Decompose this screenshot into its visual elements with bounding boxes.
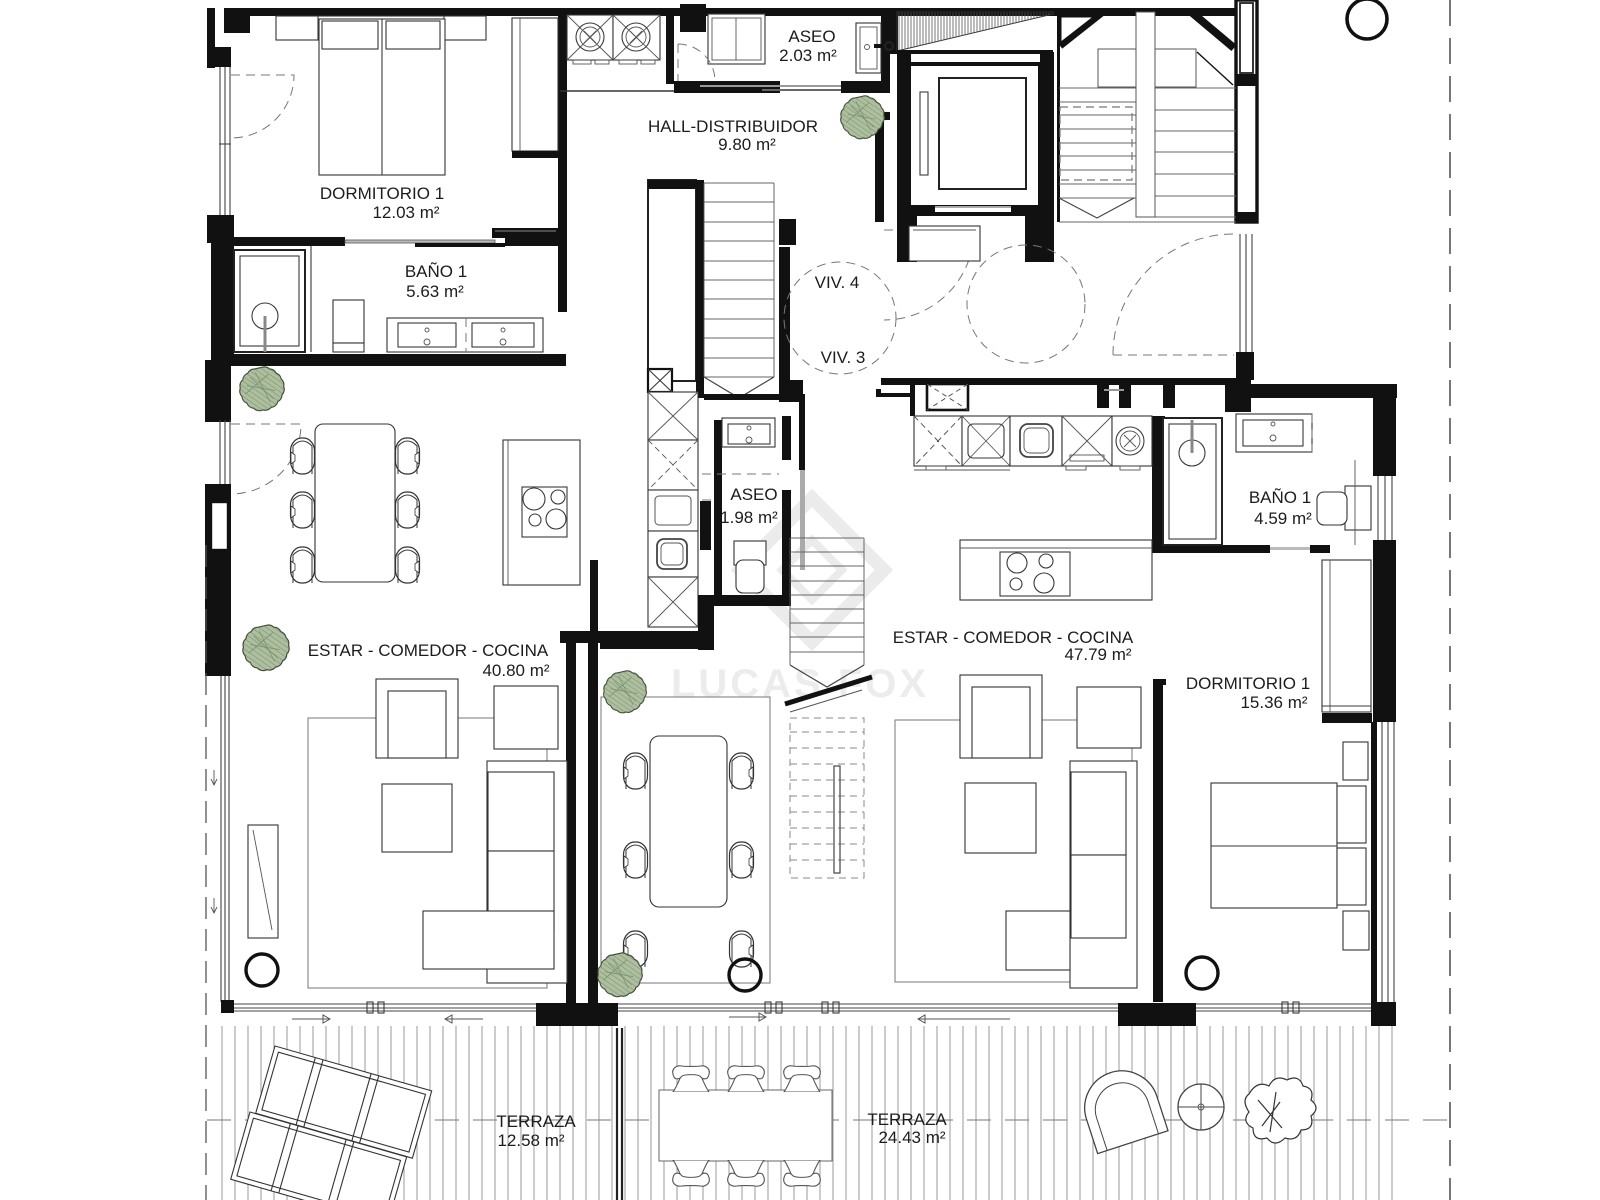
svg-text:VIV. 3: VIV. 3	[821, 348, 866, 367]
svg-text:ASEO: ASEO	[788, 27, 835, 46]
svg-text:BAÑO 1: BAÑO 1	[1249, 488, 1311, 507]
svg-text:47.79 m²: 47.79 m²	[1064, 645, 1131, 664]
svg-text:HALL-DISTRIBUIDOR: HALL-DISTRIBUIDOR	[648, 117, 818, 136]
svg-text:ASEO: ASEO	[730, 485, 777, 504]
svg-text:DORMITORIO 1: DORMITORIO 1	[320, 184, 444, 203]
svg-text:TERRAZA: TERRAZA	[496, 1112, 576, 1131]
svg-text:24.43 m²: 24.43 m²	[878, 1128, 945, 1147]
svg-text:VIV. 4: VIV. 4	[815, 273, 860, 292]
svg-text:9.80 m²: 9.80 m²	[718, 135, 776, 154]
svg-text:15.36 m²: 15.36 m²	[1240, 693, 1307, 712]
svg-text:5.63 m²: 5.63 m²	[406, 282, 464, 301]
svg-text:40.80 m²: 40.80 m²	[482, 661, 549, 680]
svg-text:12.03 m²: 12.03 m²	[372, 203, 439, 222]
svg-text:DORMITORIO 1: DORMITORIO 1	[1186, 674, 1310, 693]
svg-text:BAÑO 1: BAÑO 1	[405, 262, 467, 281]
svg-text:ESTAR - COMEDOR - COCINA: ESTAR - COMEDOR - COCINA	[308, 641, 549, 660]
svg-text:TERRAZA: TERRAZA	[867, 1110, 947, 1129]
svg-text:12.58 m²: 12.58 m²	[497, 1131, 564, 1150]
svg-text:2.03 m²: 2.03 m²	[779, 46, 837, 65]
svg-text:4.59 m²: 4.59 m²	[1254, 509, 1312, 528]
svg-text:1.98 m²: 1.98 m²	[720, 508, 778, 527]
